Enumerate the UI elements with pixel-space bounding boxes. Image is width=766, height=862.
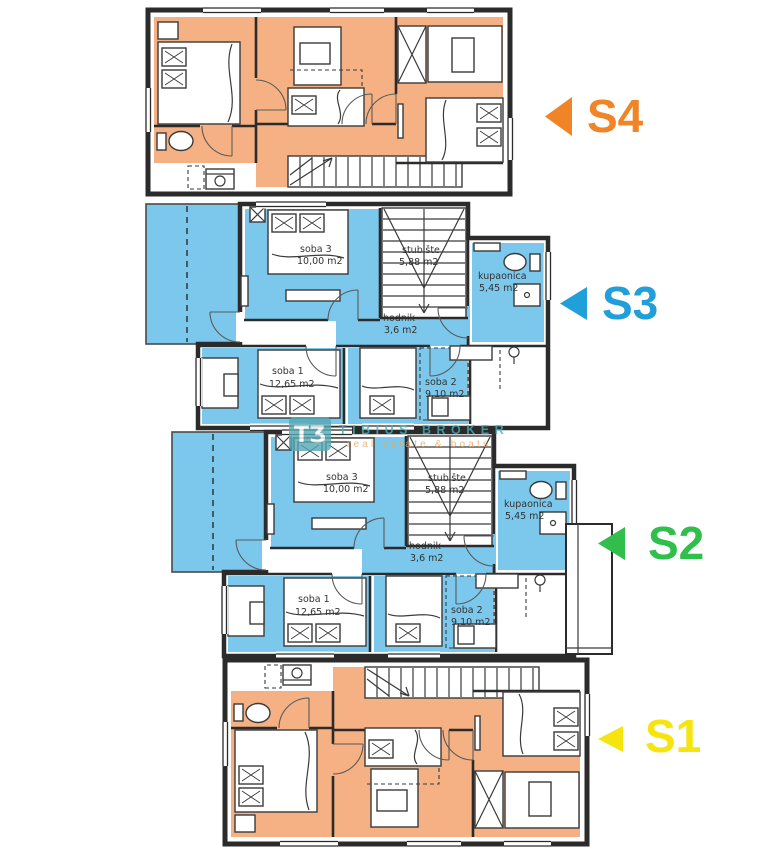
room-area-hodnik: 3,6 m2: [384, 325, 417, 336]
apartment-label-s1: S1: [645, 710, 701, 762]
room-label-soba2: soba 2: [451, 605, 483, 616]
room-label-stubiste: stubište: [428, 473, 466, 484]
floor-plan-page: soba 3 10,00 m2 stubište 5,88 m2 kupaoni…: [0, 0, 766, 862]
toilet-icon: [169, 132, 193, 151]
radiator: [241, 276, 248, 306]
room-label-stubiste: stubište: [402, 245, 440, 256]
room-label-soba1: soba 1: [272, 366, 304, 377]
toilet-tank: [157, 133, 166, 150]
watermark-brand: TIBIUS BROKER: [339, 423, 509, 437]
room-area-stubiste: 5,88 m2: [399, 257, 438, 268]
watermark-tagline: real estate & boats: [347, 439, 491, 450]
watermark: TƷ TIBIUS BROKER real estate & boats: [289, 417, 509, 451]
radiator: [398, 104, 403, 138]
apartment-s1-geometry: [221, 660, 592, 849]
apartment-label-s4: S4: [587, 90, 644, 142]
room-label-soba1: soba 1: [298, 594, 330, 605]
balcony: [146, 204, 240, 344]
radiator: [474, 243, 500, 251]
toilet-tank: [530, 254, 540, 271]
apartment-label-s3: S3: [602, 277, 658, 329]
bench: [450, 346, 492, 360]
room-label-soba3: soba 3: [326, 472, 358, 483]
room-area-kupaonica: 5,45 m2: [505, 511, 544, 522]
room-label-hodnik: hodnik: [383, 313, 416, 324]
room-label-soba3: soba 3: [300, 244, 332, 255]
watermark-monogram: TƷ: [294, 423, 326, 448]
apartment-label-s2: S2: [648, 517, 704, 569]
double-bed: [158, 42, 240, 124]
room-area-soba1: 12,65 m2: [269, 379, 315, 390]
bench: [286, 290, 340, 301]
room-area-soba2: 9,10 m2: [451, 617, 490, 628]
toilet-icon: [504, 254, 526, 271]
room-area-stubiste: 5,88 m2: [425, 485, 464, 496]
room-area-soba3: 10,00 m2: [323, 484, 369, 495]
room-area-kupaonica: 5,45 m2: [479, 283, 518, 294]
room-area-soba1: 12,65 m2: [295, 607, 341, 618]
room-area-soba2: 9,10 m2: [425, 389, 464, 400]
floor-plan-canvas: soba 3 10,00 m2 stubište 5,88 m2 kupaoni…: [0, 0, 766, 862]
room-label-hodnik: hodnik: [409, 541, 442, 552]
room-label-kupaonica: kupaonica: [504, 499, 553, 510]
room-label-kupaonica: kupaonica: [478, 271, 527, 282]
room-label-soba2: soba 2: [425, 377, 457, 388]
apartment-s4-geometry: [144, 6, 515, 195]
room-area-soba3: 10,00 m2: [297, 256, 343, 267]
room-area-hodnik: 3,6 m2: [410, 553, 443, 564]
nightstand: [158, 22, 178, 39]
